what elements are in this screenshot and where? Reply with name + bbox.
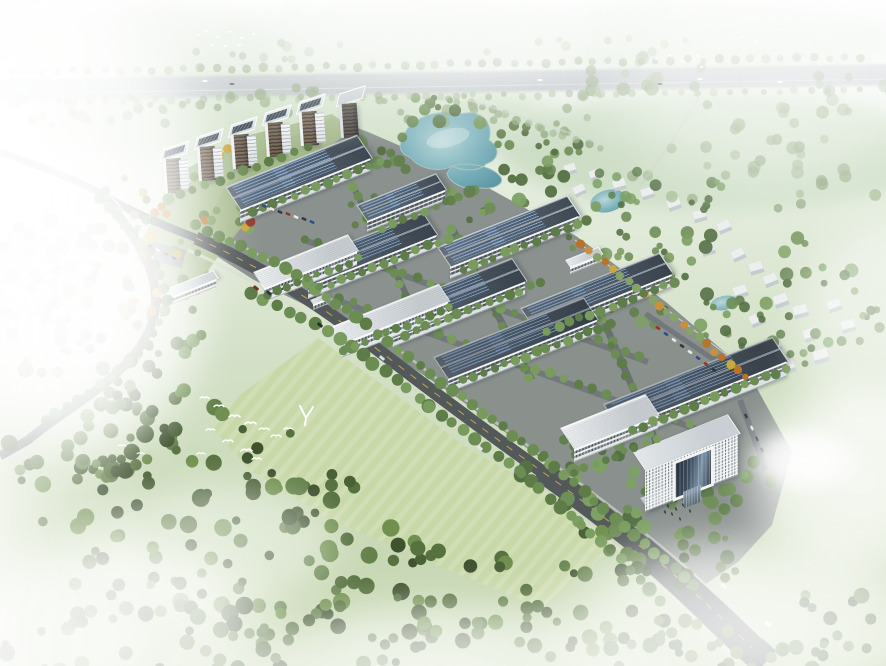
car (163, 252, 169, 256)
car (229, 83, 234, 85)
bird (271, 435, 281, 436)
car (744, 413, 748, 419)
car (285, 212, 291, 216)
car (155, 248, 161, 252)
car (671, 338, 677, 343)
car (703, 362, 709, 367)
car (277, 210, 283, 214)
car (537, 79, 542, 81)
car (697, 78, 702, 80)
bird (259, 428, 269, 429)
bird (241, 449, 252, 451)
car (309, 220, 315, 224)
car (711, 368, 717, 373)
car (687, 350, 693, 355)
distant-parked-dots (196, 30, 757, 68)
car (171, 256, 177, 260)
car (301, 217, 307, 221)
car (293, 215, 299, 219)
street-tree-rows (41, 143, 791, 607)
car (720, 582, 728, 589)
car (750, 425, 754, 431)
bird (118, 445, 126, 446)
car (679, 344, 685, 349)
aerial-rendering-canvas (0, 0, 886, 666)
bird (223, 440, 233, 441)
car (695, 356, 701, 361)
car (657, 83, 662, 85)
large-bird (300, 406, 313, 425)
car (760, 447, 764, 453)
bird (252, 458, 261, 459)
bird (284, 428, 293, 429)
bird (229, 415, 240, 417)
detail-layer (0, 0, 886, 666)
bird-flock (118, 397, 313, 459)
car (764, 620, 772, 627)
bird (197, 453, 205, 454)
car (202, 80, 207, 82)
traffic-and-parking (147, 78, 782, 628)
car (655, 326, 661, 331)
car (663, 332, 669, 337)
car (755, 436, 759, 442)
bird (214, 405, 224, 406)
bird (206, 429, 215, 430)
car (777, 81, 782, 83)
bird (137, 453, 144, 454)
bird (200, 397, 209, 398)
bird (245, 422, 256, 424)
car (379, 355, 386, 361)
plaza-people (664, 503, 691, 520)
